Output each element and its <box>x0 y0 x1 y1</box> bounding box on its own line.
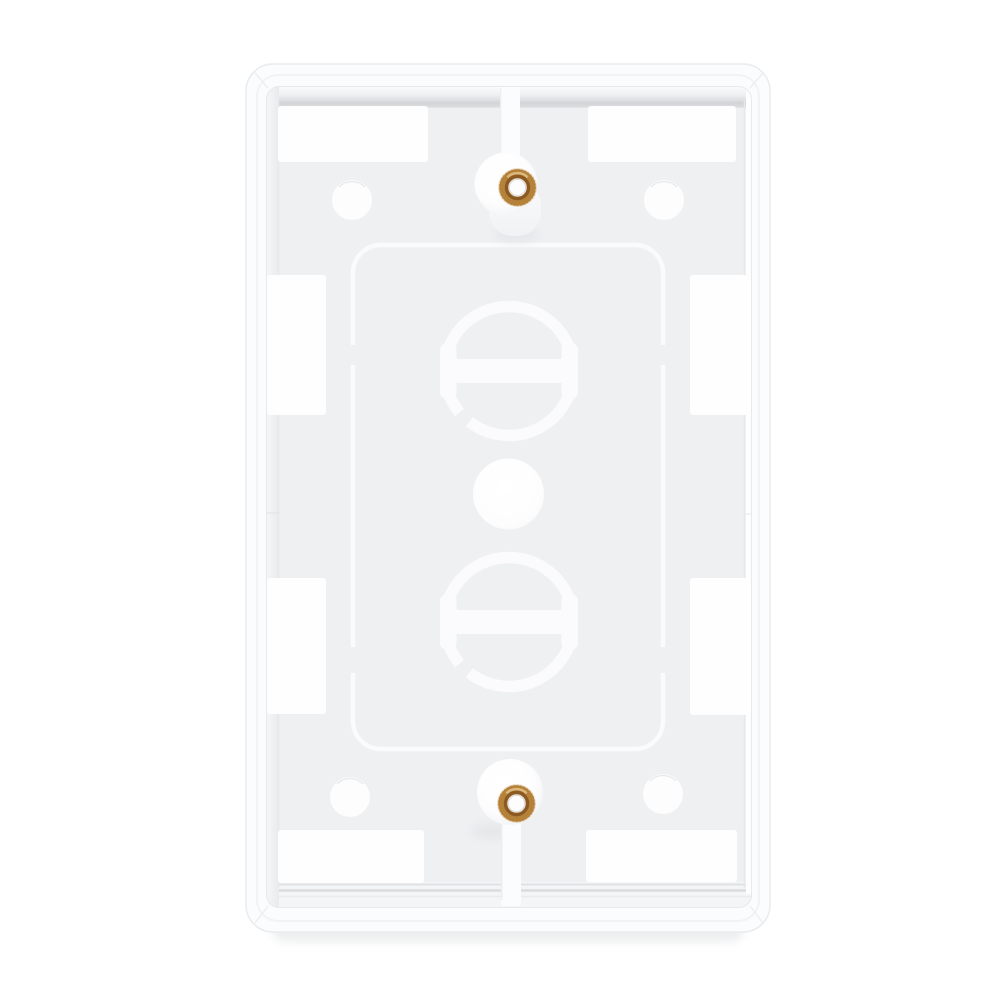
hole-bottom-left <box>330 777 370 817</box>
recess-bottom-left <box>278 830 424 883</box>
recess-top-right <box>588 106 736 162</box>
bar-middle <box>448 610 570 634</box>
recess-right-lower <box>690 578 747 715</box>
bottom-rib <box>501 818 521 906</box>
product-photo-wall-plate-back <box>0 0 1000 1000</box>
top-rib <box>500 86 520 162</box>
hole-top-right <box>644 180 684 220</box>
bar-middle <box>448 359 570 383</box>
wall-plate <box>246 64 770 932</box>
scribe-gap-right-upper <box>658 345 668 365</box>
scribe-gap-left-lower <box>348 647 358 673</box>
recess-left-lower <box>267 578 326 714</box>
top-screw-insert <box>498 168 537 207</box>
recess-left-upper <box>267 275 326 415</box>
recess-right-upper <box>690 275 747 415</box>
recess-bottom-right <box>586 830 737 882</box>
recess-top-left <box>278 106 428 162</box>
hole-bottom-right <box>643 774 683 814</box>
bottom-screw-insert <box>497 784 536 823</box>
left-wall-band <box>266 86 279 908</box>
cavity <box>266 86 760 908</box>
center-knockout-disc <box>473 459 544 530</box>
hole-top-left <box>332 180 372 220</box>
scribe-gap-right-lower <box>658 647 668 673</box>
scribe-gap-left-upper <box>348 345 358 365</box>
